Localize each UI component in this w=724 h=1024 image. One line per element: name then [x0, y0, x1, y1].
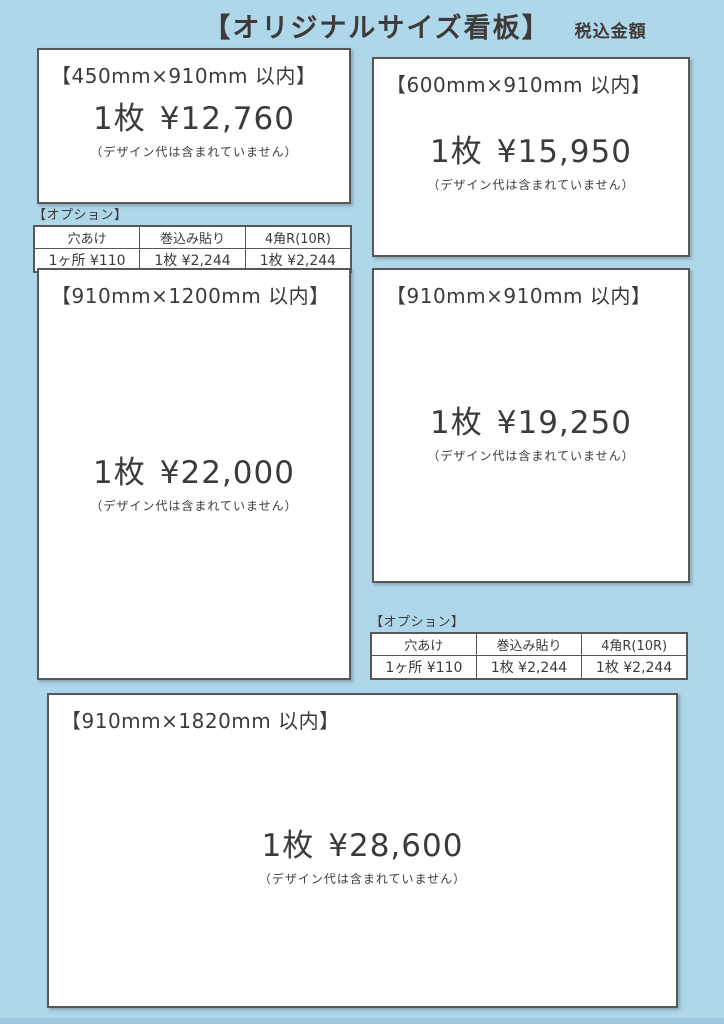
options-header-row: 穴あけ 巻込み貼り 4角R(10R): [371, 633, 687, 656]
price-amount: ¥22,000: [160, 455, 295, 491]
design-fee-note: （デザイン代は含まれていません）: [39, 143, 349, 160]
price-qty: 1枚: [93, 455, 146, 491]
price-line: 1枚¥28,600: [49, 829, 676, 865]
price-panel-910x1820: 【910mm×1820mm 以内】 1枚¥28,600 （デザイン代は含まれてい…: [47, 693, 678, 1008]
price-qty: 1枚: [430, 134, 483, 170]
option-price-corner: 1枚 ¥2,244: [582, 656, 687, 680]
price-block: 1枚¥28,600 （デザイン代は含まれていません）: [49, 829, 676, 887]
options-label: 【オプション】: [370, 611, 688, 630]
price-line: 1枚¥22,000: [39, 456, 349, 492]
price-amount: ¥28,600: [328, 828, 463, 864]
page-header: 【オリジナルサイズ看板】 税込金額: [0, 6, 724, 45]
option-col-hole: 穴あけ: [371, 633, 476, 656]
design-fee-note: （デザイン代は含まれていません）: [39, 497, 349, 514]
price-line: 1枚¥19,250: [374, 406, 688, 442]
size-label: 【450mm×910mm 以内】: [51, 60, 316, 89]
size-label: 【910mm×1200mm 以内】: [51, 280, 330, 309]
size-label: 【910mm×910mm 以内】: [386, 280, 651, 309]
option-col-hole: 穴あけ: [34, 226, 140, 249]
option-col-wrap: 巻込み貼り: [476, 633, 581, 656]
price-block: 1枚¥15,950 （デザイン代は含まれていません）: [374, 135, 688, 193]
price-panel-450x910: 【450mm×910mm 以内】 1枚¥12,760 （デザイン代は含まれていま…: [37, 48, 351, 204]
design-fee-note: （デザイン代は含まれていません）: [374, 176, 688, 193]
option-col-wrap: 巻込み貼り: [140, 226, 246, 249]
option-col-corner: 4角R(10R): [582, 633, 687, 656]
price-qty: 1枚: [93, 101, 146, 137]
options-table-right: 穴あけ 巻込み貼り 4角R(10R) 1ヶ所 ¥110 1枚 ¥2,244 1枚…: [370, 632, 688, 680]
price-amount: ¥12,760: [160, 101, 295, 137]
option-price-hole: 1ヶ所 ¥110: [371, 656, 476, 680]
price-block: 1枚¥19,250 （デザイン代は含まれていません）: [374, 406, 688, 464]
price-block: 1枚¥12,760 （デザイン代は含まれていません）: [39, 102, 349, 160]
option-col-corner: 4角R(10R): [245, 226, 351, 249]
tax-included-note: 税込金額: [575, 17, 647, 42]
price-panel-910x910: 【910mm×910mm 以内】 1枚¥19,250 （デザイン代は含まれていま…: [372, 268, 690, 583]
options-table-left: 穴あけ 巻込み貼り 4角R(10R) 1ヶ所 ¥110 1枚 ¥2,244 1枚…: [33, 225, 352, 273]
price-block: 1枚¥22,000 （デザイン代は含まれていません）: [39, 456, 349, 514]
size-label: 【910mm×1820mm 以内】: [61, 705, 340, 734]
price-amount: ¥19,250: [497, 405, 632, 441]
option-price-wrap: 1枚 ¥2,244: [476, 656, 581, 680]
options-label: 【オプション】: [33, 204, 352, 223]
design-fee-note: （デザイン代は含まれていません）: [374, 447, 688, 464]
size-label: 【600mm×910mm 以内】: [386, 69, 651, 98]
options-value-row: 1ヶ所 ¥110 1枚 ¥2,244 1枚 ¥2,244: [371, 656, 687, 680]
price-qty: 1枚: [430, 405, 483, 441]
options-section-right: 【オプション】 穴あけ 巻込み貼り 4角R(10R) 1ヶ所 ¥110 1枚 ¥…: [370, 611, 688, 680]
design-fee-note: （デザイン代は含まれていません）: [49, 870, 676, 887]
price-panel-600x910: 【600mm×910mm 以内】 1枚¥15,950 （デザイン代は含まれていま…: [372, 57, 690, 257]
page-bottom-edge: [0, 1018, 724, 1024]
price-line: 1枚¥15,950: [374, 135, 688, 171]
price-line: 1枚¥12,760: [39, 102, 349, 138]
page-title: 【オリジナルサイズ看板】: [203, 6, 550, 45]
price-qty: 1枚: [262, 828, 315, 864]
price-panel-910x1200: 【910mm×1200mm 以内】 1枚¥22,000 （デザイン代は含まれてい…: [37, 268, 351, 680]
price-amount: ¥15,950: [497, 134, 632, 170]
options-section-left: 【オプション】 穴あけ 巻込み貼り 4角R(10R) 1ヶ所 ¥110 1枚 ¥…: [33, 204, 352, 273]
options-header-row: 穴あけ 巻込み貼り 4角R(10R): [34, 226, 351, 249]
